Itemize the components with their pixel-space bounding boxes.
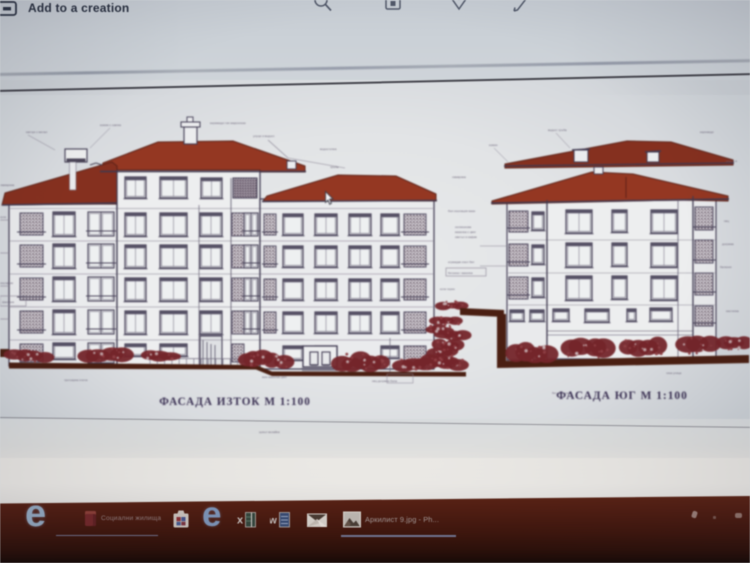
svg-text:балкони: балкони <box>720 265 732 269</box>
svg-text:керемиди тип марсилски: керемиди тип марсилски <box>210 121 246 125</box>
svg-text:водост тръба: водост тръба <box>548 128 567 132</box>
svg-text:мазилка с цвят: мазилка с цвят <box>455 230 477 234</box>
svg-text:пвц дограма бяла: пвц дограма бяла <box>372 379 397 383</box>
svg-text:улуци и водост.: улуци и водост. <box>253 134 275 138</box>
svg-text:комин: комин <box>489 143 498 147</box>
svg-text:ламарина: ламарина <box>0 183 15 187</box>
svg-text:фасадна: фасадна <box>2 300 14 304</box>
svg-text:ограждан изол бял: ограждан изол бял <box>448 260 474 264</box>
svg-text:x: x <box>237 515 244 527</box>
svg-text:w: w <box>270 516 277 527</box>
svg-text:пвц: пвц <box>724 219 729 223</box>
svg-text:силиконова: силиконова <box>455 225 472 229</box>
svg-text:улук и в: улук и в <box>726 159 737 163</box>
svg-text:кота терен: кота терен <box>440 287 455 291</box>
svg-text:цокъл мозайка: цокъл мозайка <box>259 430 280 434</box>
svg-text:керемиди: керемиди <box>700 130 714 134</box>
svg-text:капчук с метал: капчук с метал <box>26 130 47 134</box>
svg-text:тротоарна плоча: тротоарна плоча <box>64 378 88 382</box>
svg-text:ФАСАДА ИЗТОК М 1:100: ФАСАДА ИЗТОК М 1:100 <box>159 396 311 408</box>
svg-text:ламарина: ламарина <box>452 175 466 179</box>
svg-text:кота: кота <box>0 215 6 219</box>
svg-text:бил изолация мазе: бил изолация мазе <box>448 209 476 213</box>
svg-text:мин мазилка цвят: мин мазилка цвят <box>262 375 288 379</box>
svg-text:изолация: изолация <box>0 281 13 285</box>
svg-text:водосточна: водосточна <box>320 147 337 151</box>
svg-text:тръба: тръба <box>330 165 339 169</box>
svg-text:комин с шапка: комин с шапка <box>100 123 121 127</box>
svg-text:ФАСАДА ЮГ М 1:100: ФАСАДА ЮГ М 1:100 <box>556 390 688 402</box>
svg-text:настилка: настилка <box>726 309 739 313</box>
svg-text:тиха улица: тиха улица <box>666 371 682 375</box>
svg-text:дограма: дограма <box>722 242 734 246</box>
svg-text:светъл и кафяв: светъл и кафяв <box>455 235 477 239</box>
svg-text:бетонна г мазилка: бетонна г мазилка <box>448 271 473 275</box>
